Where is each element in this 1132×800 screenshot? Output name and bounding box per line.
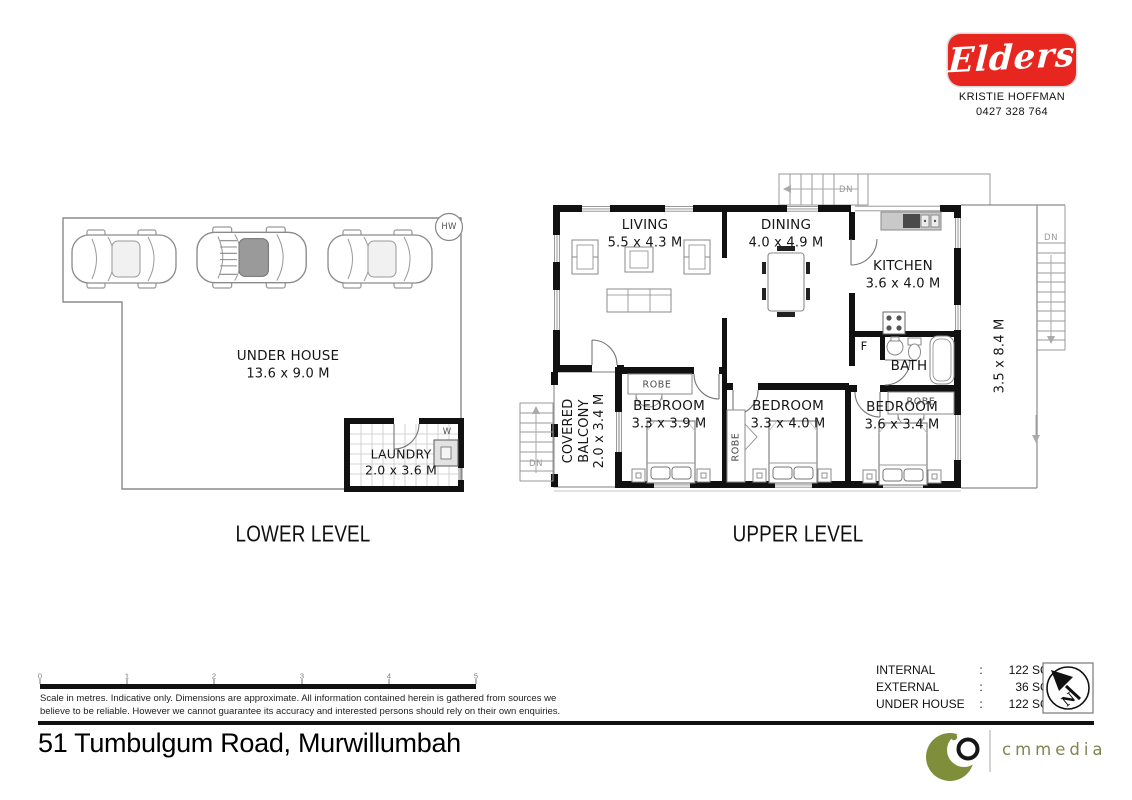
robe-label: ROBE xyxy=(643,380,672,391)
dining-table-icon xyxy=(762,246,810,317)
floorplan-page: Elders KRISTIE HOFFMAN 0427 328 764 UNDE… xyxy=(0,0,1132,800)
living-furniture xyxy=(572,240,710,312)
scale-tick: 0 xyxy=(38,672,42,681)
area-row: EXTERNAL : 36 SQ.M. xyxy=(876,679,1066,696)
fridge-label: F xyxy=(861,339,868,353)
hot-water-label: HW xyxy=(441,222,456,232)
bath-label: BATH xyxy=(891,358,928,374)
stairs-right-icon xyxy=(1037,205,1065,350)
stairs-top-icon xyxy=(779,174,868,205)
laundry-dims: 2.0 x 3.6 M xyxy=(365,463,437,478)
scale-bar xyxy=(40,684,476,689)
dining-label: DINING xyxy=(761,217,811,233)
bedroom1-dims: 3.3 x 3.9 M xyxy=(632,417,707,432)
under-house-label: UNDER HOUSE xyxy=(237,348,340,364)
area-row: INTERNAL : 122 SQ.M. xyxy=(876,662,1066,679)
disclaimer-line2: believe to be reliable. However we canno… xyxy=(40,705,560,718)
kitchen-label: KITCHEN xyxy=(873,258,933,274)
bedroom2-dims: 3.3 x 4.0 M xyxy=(751,417,826,432)
scale-tick: 4 xyxy=(387,672,391,681)
bedroom2-label: BEDROOM xyxy=(752,398,824,414)
down-label: DN xyxy=(529,459,543,469)
agent-name: KRISTIE HOFFMAN xyxy=(959,91,1065,103)
sink-icon xyxy=(903,214,920,228)
down-label: DN xyxy=(839,185,853,195)
elders-logo-text: Elders xyxy=(947,35,1076,86)
sofa-icon xyxy=(607,289,671,312)
elders-logo: Elders xyxy=(948,34,1076,86)
robe-label: ROBE xyxy=(731,433,742,462)
down-label: DN xyxy=(1044,233,1058,243)
area-summary: INTERNAL : 122 SQ.M. EXTERNAL : 36 SQ.M.… xyxy=(876,662,1066,713)
deck xyxy=(961,205,1065,488)
dining-dims: 4.0 x 4.9 M xyxy=(749,236,824,251)
agent-phone: 0427 328 764 xyxy=(976,106,1048,118)
area-row: UNDER HOUSE : 122 SQ.M. xyxy=(876,696,1066,713)
washer-label: W xyxy=(443,427,452,437)
living-label: LIVING xyxy=(622,217,668,233)
scale-tick: 3 xyxy=(300,672,304,681)
compass-icon: N xyxy=(1042,662,1094,714)
covered-balcony-label: COVERED BALCONY 2.0 x 3.4 M xyxy=(561,394,608,469)
living-dims: 5.5 x 4.3 M xyxy=(608,236,683,251)
stairs-balcony-icon xyxy=(520,403,553,481)
upper-level-title: UPPER LEVEL xyxy=(733,521,864,548)
laundry-label: LAUNDRY xyxy=(371,447,432,462)
scale-tick: 2 xyxy=(212,672,216,681)
cmmedia-logo-text: cmmedia xyxy=(1002,740,1107,759)
car-icon xyxy=(72,230,176,288)
disclaimer-line1: Scale in metres. Indicative only. Dimens… xyxy=(40,692,560,705)
landing-outline xyxy=(868,174,990,205)
lower-level-title: LOWER LEVEL xyxy=(236,521,371,548)
cmmedia-logo-icon xyxy=(918,724,1008,788)
laundry-door xyxy=(394,424,419,449)
bedroom1-label: BEDROOM xyxy=(633,398,705,414)
kitchen-dims: 3.6 x 4.0 M xyxy=(866,277,941,292)
property-address: 51 Tumbulgum Road, Murwillumbah xyxy=(38,728,461,759)
under-house-dims: 13.6 x 9.0 M xyxy=(246,367,329,382)
deck-dims: 3.5 x 8.4 M xyxy=(993,319,1008,394)
scale-tick: 5 xyxy=(474,672,478,681)
bedroom3-dims: 3.6 x 3.4 M xyxy=(865,418,940,433)
car-icon xyxy=(197,227,306,288)
car-icon xyxy=(328,230,432,288)
cooktop-icon xyxy=(883,312,905,334)
scale-tick: 1 xyxy=(125,672,129,681)
robe-label: ROBE xyxy=(907,397,936,408)
washing-machine-icon xyxy=(434,440,458,466)
